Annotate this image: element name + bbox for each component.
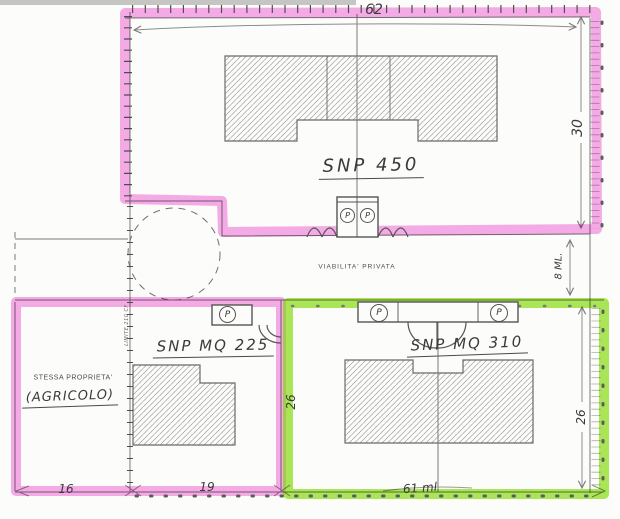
dim-top-width: 62 — [365, 2, 383, 18]
parking-icon: P — [340, 208, 355, 223]
dim-br-left-height: 26 — [284, 394, 298, 409]
parking-icon: P — [219, 306, 236, 323]
dim-bl-bottom-left: 16 — [58, 482, 73, 496]
building-top-footprint — [225, 56, 497, 141]
road-label: VIABILITA' PRIVATA — [318, 264, 395, 271]
dim-road-width: 8 ML. — [554, 253, 565, 280]
owner-title: STESSA PROPRIETA' — [34, 375, 113, 382]
parcel-bottom-right-label: SNP MQ 310 — [406, 332, 527, 357]
dim-br-bottom-width: 61 ml — [402, 480, 437, 496]
parking-icon: P — [370, 304, 388, 322]
dim-right-height: 30 — [570, 119, 586, 137]
turning-circle — [128, 208, 220, 300]
parcel-bottom-left-label: SNP MQ 225 — [152, 335, 273, 358]
limit-line-label: LIMITE 210 CF — [124, 304, 130, 346]
parking-icon: P — [490, 304, 508, 322]
dim-br-right-height: 26 — [574, 409, 588, 424]
site-plan: 62 30 SNP 450 VIABILITA' PRIVATA 8 ML. S… — [0, 0, 620, 519]
building-bottom-left-footprint — [133, 365, 235, 445]
owner-note: (AGRICOLO) — [22, 387, 119, 408]
plan-drawing — [0, 0, 620, 519]
parking-icon: P — [360, 208, 375, 223]
building-bottom-right-footprint — [345, 360, 533, 443]
dim-bl-bottom-right: 19 — [199, 480, 214, 494]
parcel-top-label: SNP 450 — [318, 154, 423, 180]
